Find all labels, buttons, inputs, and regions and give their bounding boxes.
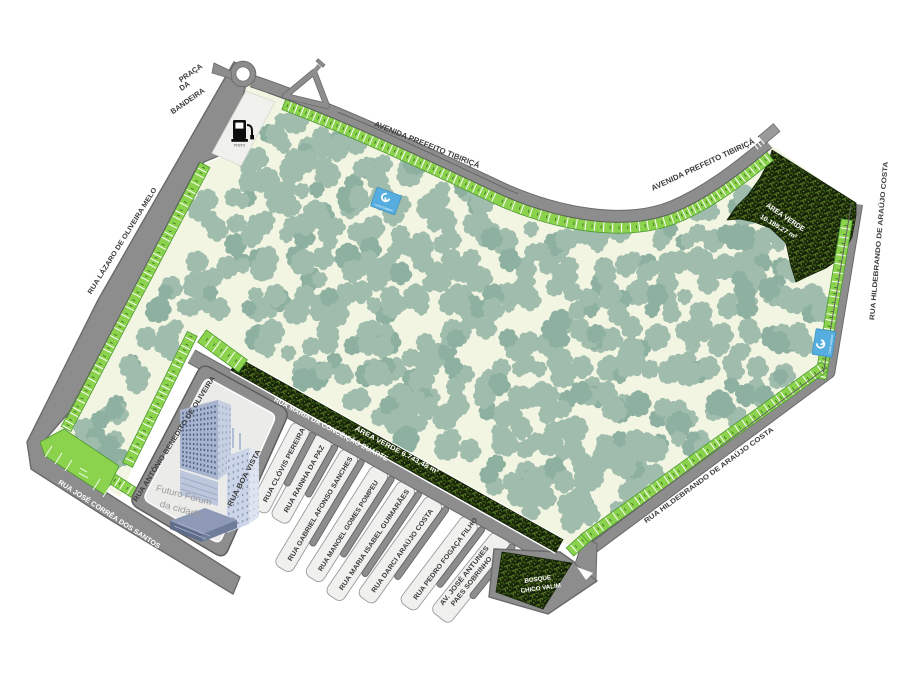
svg-text:POSTO: POSTO bbox=[234, 144, 246, 148]
